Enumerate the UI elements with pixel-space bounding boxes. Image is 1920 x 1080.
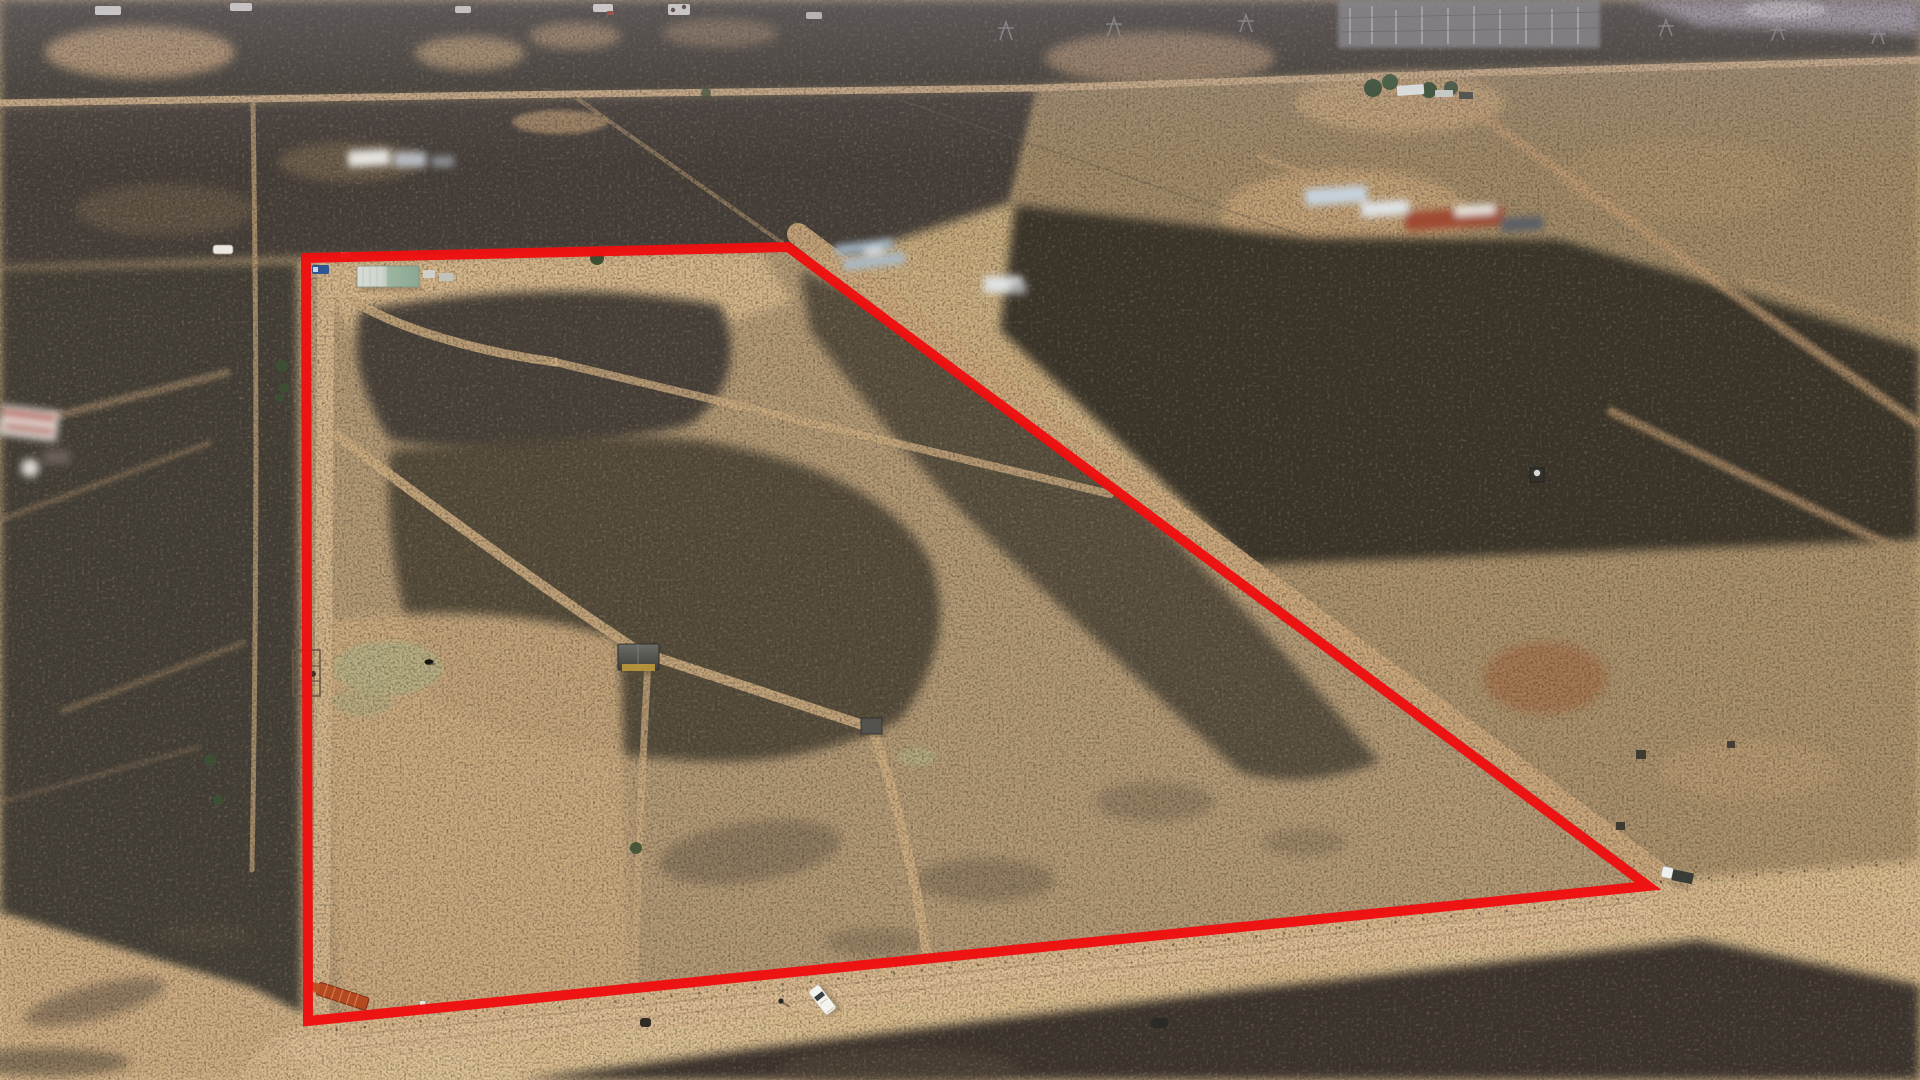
distance-haze <box>0 0 1920 170</box>
aerial-photo-canvas <box>0 0 1920 1080</box>
tank-hut <box>1530 468 1544 482</box>
blurred-building <box>984 276 1026 294</box>
caravan <box>213 245 233 254</box>
blue-truck <box>312 265 329 274</box>
dark-car <box>1151 1018 1168 1028</box>
hay-shed <box>618 644 664 675</box>
aerial-photo <box>0 0 1920 1080</box>
field-shed <box>861 718 885 737</box>
